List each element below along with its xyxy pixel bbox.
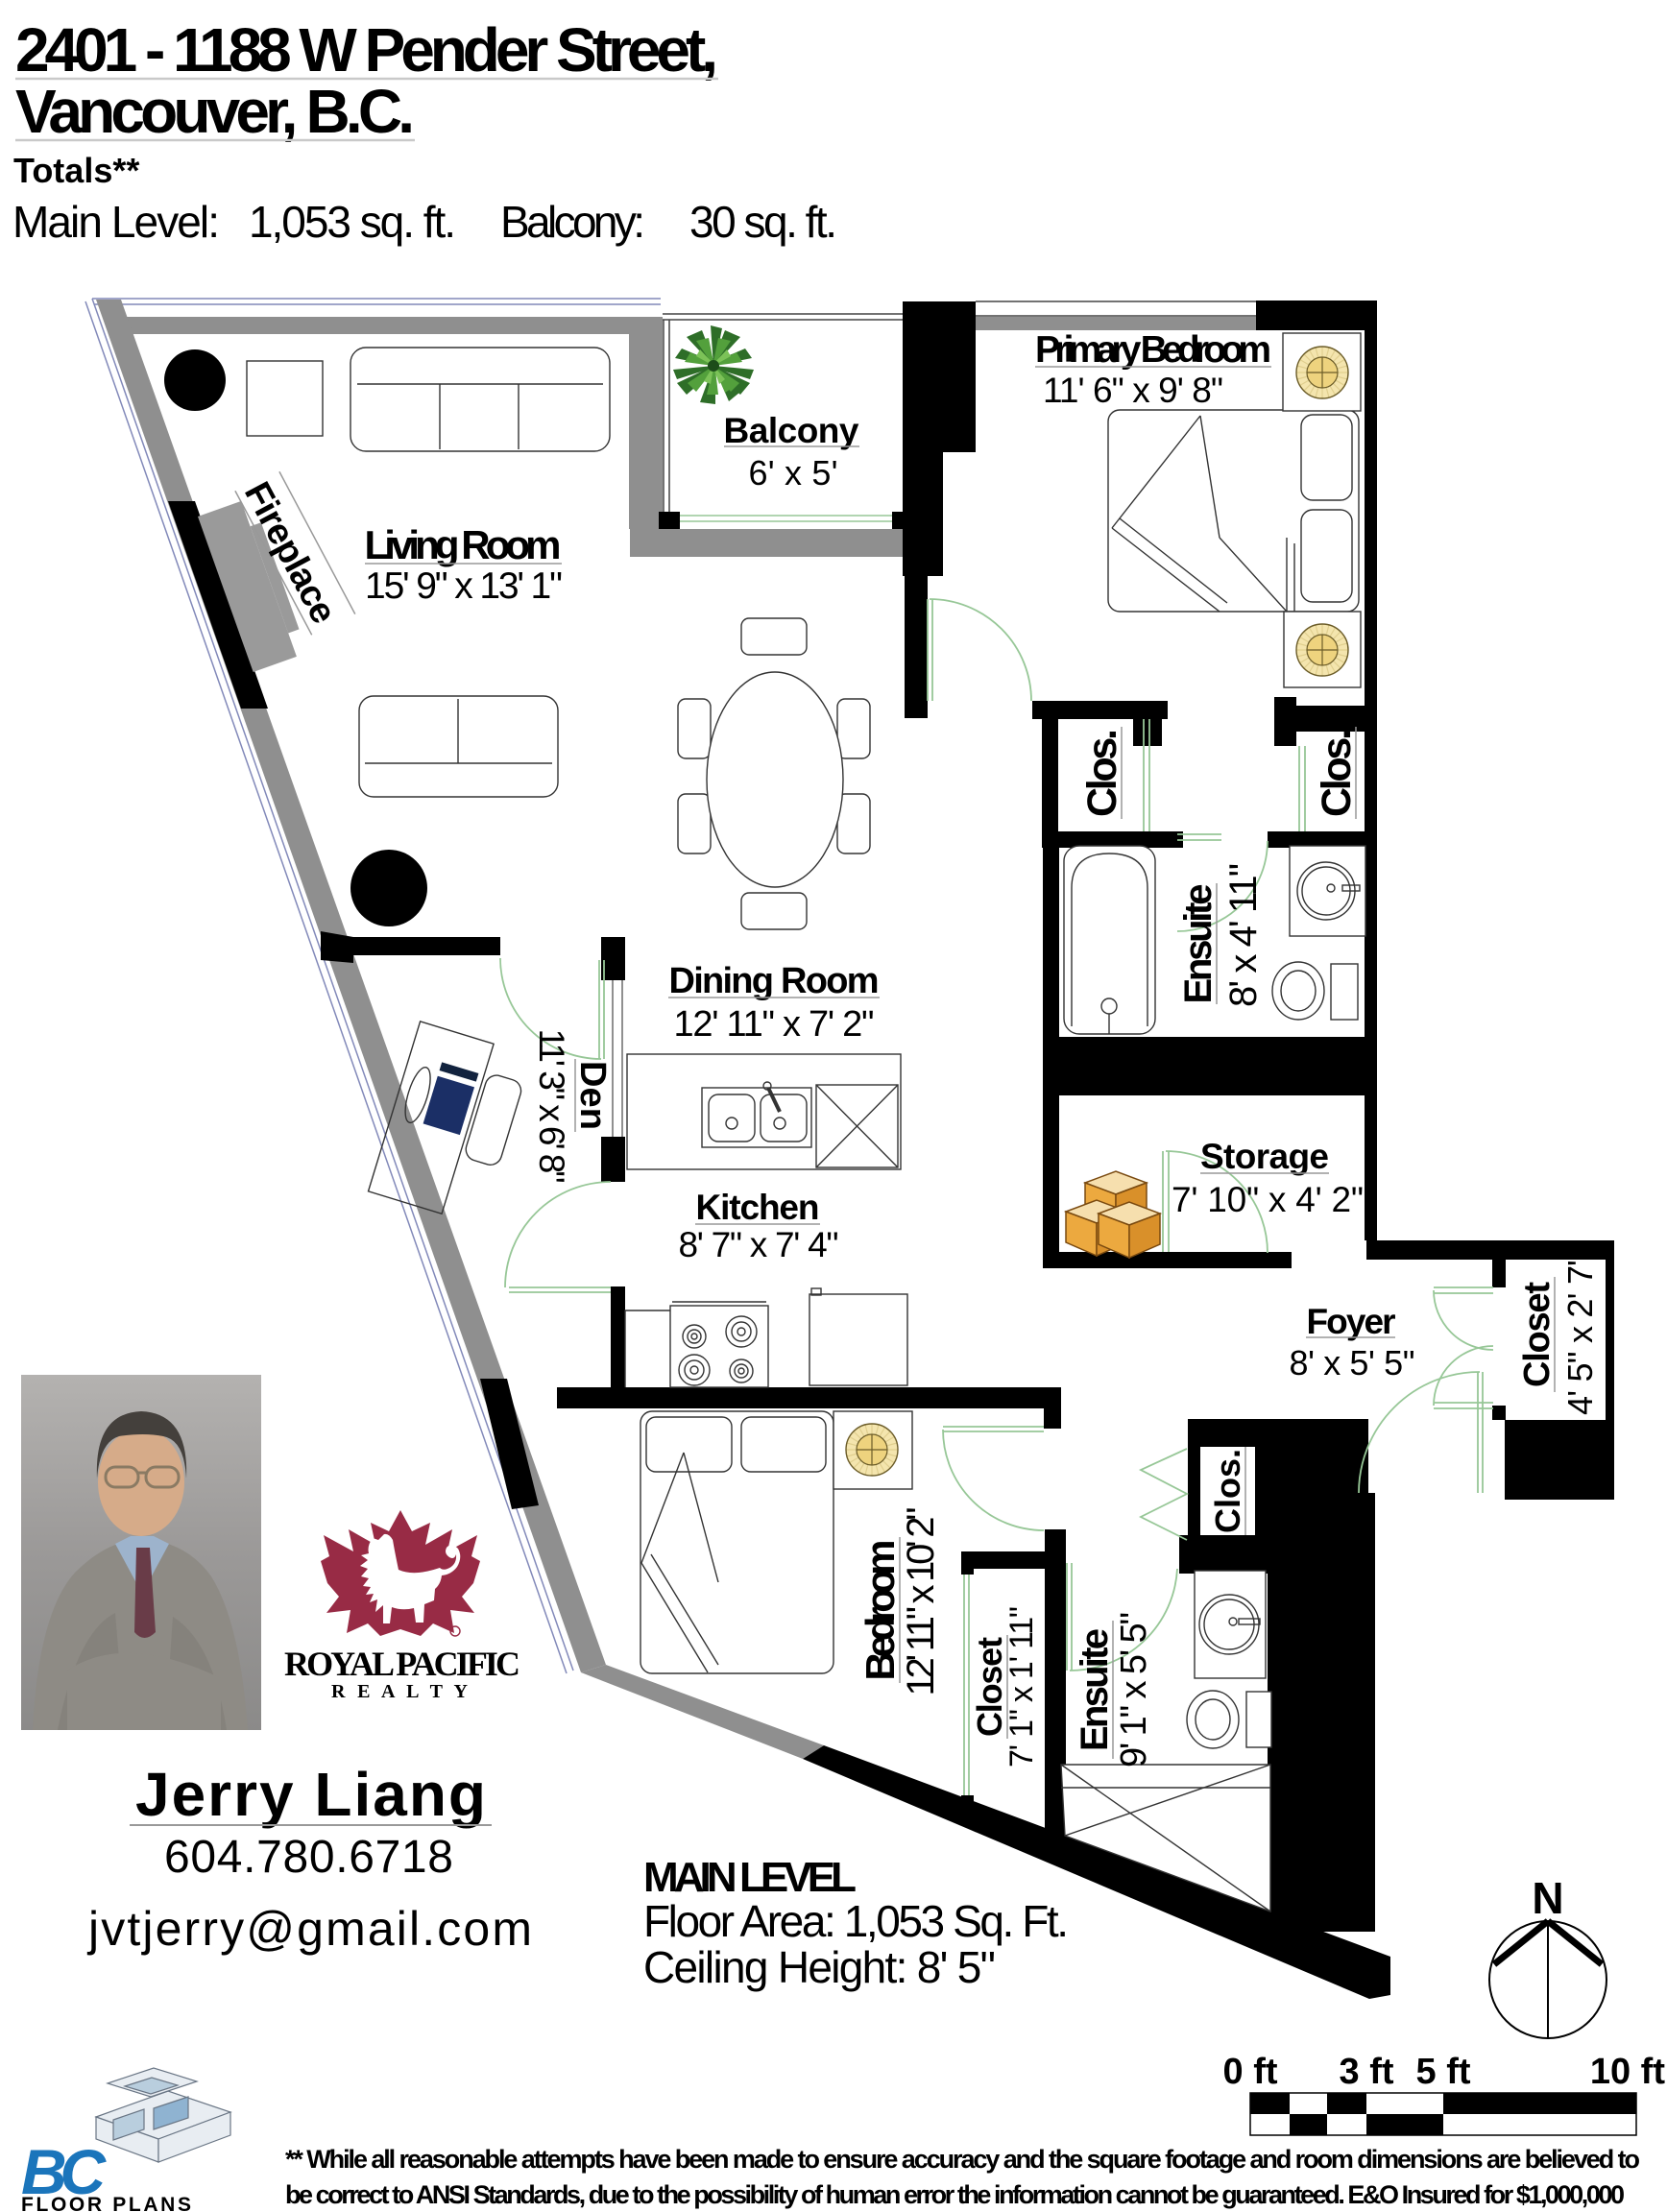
svg-text:Foyer: Foyer [1307,1302,1396,1341]
svg-text:R E A L T Y: R E A L T Y [331,1681,469,1702]
svg-text:Clos.: Clos. [1208,1449,1247,1533]
svg-text:Vancouver, B.C.: Vancouver, B.C. [15,77,415,146]
svg-text:30 sq. ft.: 30 sq. ft. [689,197,837,247]
svg-text:ROYAL PACIFIC: ROYAL PACIFIC [284,1645,520,1683]
svg-text:Totals**: Totals** [13,151,139,190]
svg-text:Dining Room: Dining Room [669,961,880,1001]
svg-text:jvtjerry@gmail.com: jvtjerry@gmail.com [86,1902,532,1956]
svg-text:5 ft: 5 ft [1416,2052,1471,2092]
svg-text:Storage: Storage [1200,1137,1329,1176]
svg-text:0 ft: 0 ft [1223,2052,1278,2092]
svg-text:Balcony:: Balcony: [500,197,645,247]
svg-text:be correct to ANSI Standards,: be correct to ANSI Standards, due to the… [285,2180,1625,2209]
svg-text:12' 11" x 7' 2": 12' 11" x 7' 2" [674,1004,875,1045]
svg-text:1,053 sq. ft.: 1,053 sq. ft. [249,197,456,247]
svg-text:Floor Area: 1,053 Sq. Ft.: Floor Area: 1,053 Sq. Ft. [643,1896,1069,1946]
svg-text:11' 3" x 6' 8": 11' 3" x 6' 8" [532,1029,571,1184]
svg-text:12' 11" x 10' 2": 12' 11" x 10' 2" [900,1507,942,1696]
svg-text:Main Level:: Main Level: [12,197,220,247]
svg-text:Balcony: Balcony [724,411,859,450]
svg-text:8' 7" x 7' 4": 8' 7" x 7' 4" [679,1225,839,1264]
svg-text:** While all reasonable attemp: ** While all reasonable attempts have be… [285,2145,1640,2174]
svg-text:9' 1" x 5' 5": 9' 1" x 5' 5" [1114,1612,1154,1767]
svg-text:3 ft: 3 ft [1340,2052,1394,2092]
svg-text:11' 6" x 9' 8": 11' 6" x 9' 8" [1043,371,1223,410]
svg-text:Living Room: Living Room [365,522,562,567]
svg-text:8' x 4' 11": 8' x 4' 11" [1222,863,1265,1007]
svg-text:Ceiling Height: 8' 5": Ceiling Height: 8' 5" [643,1942,996,1992]
svg-text:7' 10" x 4' 2": 7' 10" x 4' 2" [1172,1180,1364,1219]
svg-text:Clos.: Clos. [1314,729,1360,817]
svg-text:Ensuite: Ensuite [1177,884,1220,1004]
svg-text:604.780.6718: 604.780.6718 [164,1832,453,1883]
svg-text:Jerry Liang: Jerry Liang [135,1760,486,1829]
svg-text:6' x 5': 6' x 5' [749,453,838,493]
svg-text:Den: Den [572,1061,613,1130]
svg-text:8' x 5' 5": 8' x 5' 5" [1290,1343,1415,1382]
svg-text:Ensuite: Ensuite [1074,1628,1116,1751]
svg-text:FLOOR PLANS: FLOOR PLANS [21,2194,192,2212]
svg-text:Clos.: Clos. [1079,729,1125,817]
svg-text:Primary Bedroom: Primary Bedroom [1035,329,1271,371]
svg-text:2401 - 1188 W Pender Street,: 2401 - 1188 W Pender Street, [15,15,718,84]
svg-text:Closet: Closet [1517,1282,1558,1387]
svg-text:10 ft: 10 ft [1590,2052,1665,2092]
svg-text:N: N [1532,1873,1563,1923]
svg-text:Kitchen: Kitchen [696,1188,820,1227]
svg-text:MAIN LEVEL: MAIN LEVEL [643,1854,857,1901]
svg-text:15' 9" x 13' 1": 15' 9" x 13' 1" [365,565,563,607]
svg-text:Bedroom: Bedroom [858,1540,903,1681]
svg-text:7' 1" x 1' 11": 7' 1" x 1' 11" [1003,1606,1040,1767]
svg-text:4' 5" x 2' 7": 4' 5" x 2' 7" [1560,1254,1600,1415]
